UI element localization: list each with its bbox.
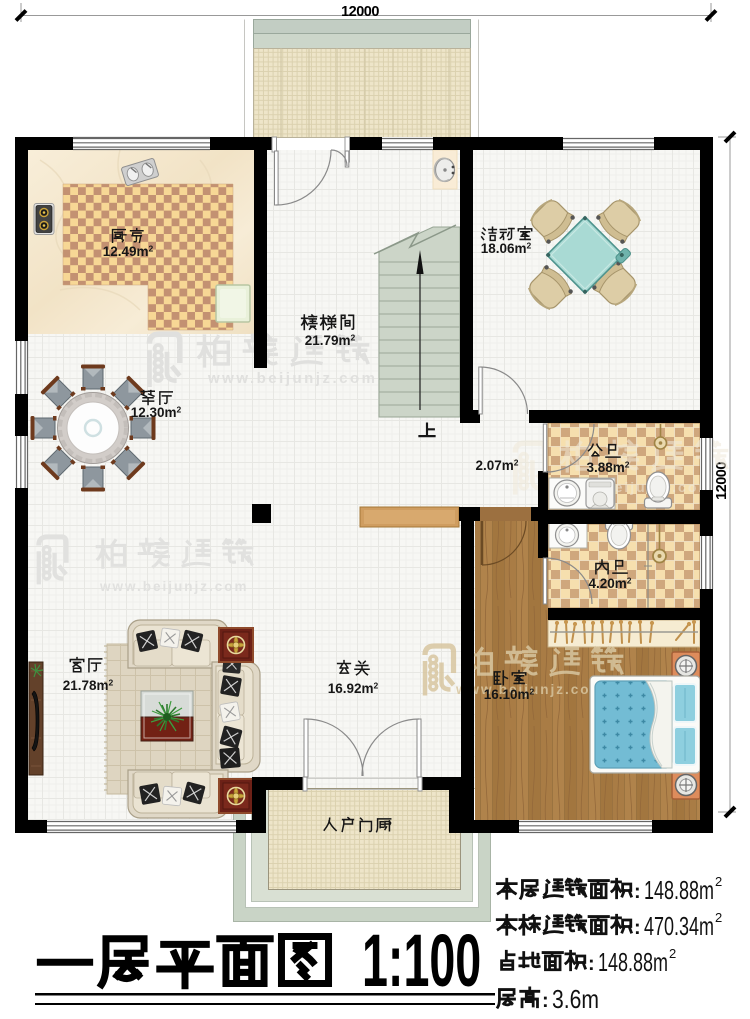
svg-text:2: 2 (669, 946, 676, 961)
svg-text:www.beijunjz.com: www.beijunjz.com (99, 579, 249, 594)
svg-text::: : (542, 990, 549, 1012)
svg-text:21.78m2: 21.78m2 (63, 678, 114, 694)
svg-text:1:100: 1:100 (362, 920, 481, 1003)
svg-text:470.34m: 470.34m (644, 911, 714, 941)
svg-text:3.88m2: 3.88m2 (586, 460, 629, 476)
svg-text:148.88m: 148.88m (598, 947, 668, 977)
svg-text:2: 2 (715, 874, 722, 889)
svg-text:16.92m2: 16.92m2 (328, 681, 379, 697)
svg-text:21.79m2: 21.79m2 (305, 333, 356, 349)
svg-text:12.30m2: 12.30m2 (131, 405, 182, 421)
svg-text:12000: 12000 (341, 4, 379, 20)
svg-text::: : (634, 917, 641, 939)
svg-text:3.6m: 3.6m (552, 984, 599, 1014)
svg-text:2: 2 (715, 910, 722, 925)
svg-text:18.06m2: 18.06m2 (481, 241, 532, 257)
svg-text:12.49m2: 12.49m2 (103, 244, 154, 260)
svg-text:16.10m2: 16.10m2 (484, 687, 535, 703)
svg-text:www.beijunjz.com: www.beijunjz.com (207, 370, 377, 387)
svg-text:4.20m2: 4.20m2 (588, 576, 631, 592)
svg-text:2.07m2: 2.07m2 (475, 458, 518, 474)
svg-text::: : (634, 881, 641, 903)
svg-text::: : (588, 953, 595, 975)
svg-text:148.88m: 148.88m (644, 875, 714, 905)
